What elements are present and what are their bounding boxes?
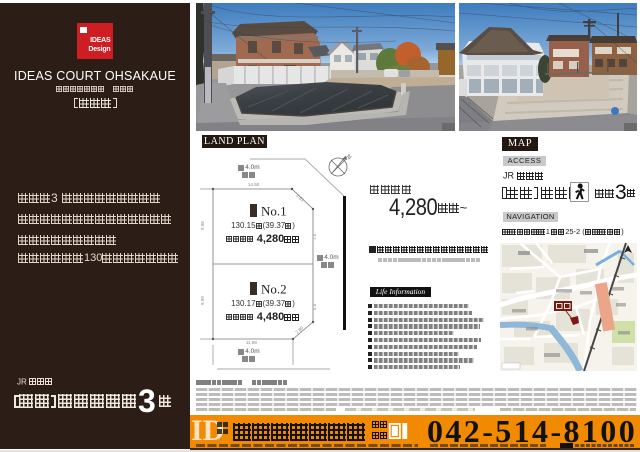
svg-text:9.99: 9.99 xyxy=(200,296,205,305)
svg-text:11.98: 11.98 xyxy=(246,340,257,345)
svg-text:9.98: 9.98 xyxy=(200,221,205,230)
svg-text:N: N xyxy=(345,154,352,161)
svg-text:14.50: 14.50 xyxy=(248,182,260,187)
